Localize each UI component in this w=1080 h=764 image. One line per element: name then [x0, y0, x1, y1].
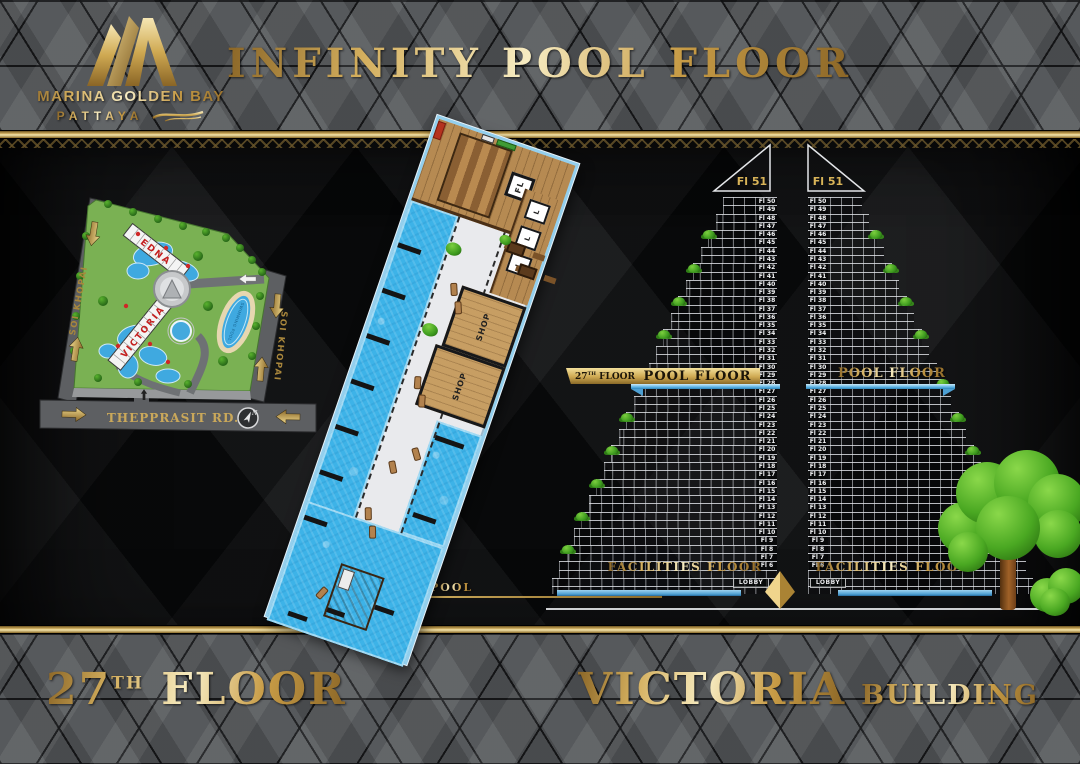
floor-label: Fl 21	[757, 438, 777, 445]
tower-floor-row: Fl 13	[589, 503, 777, 511]
floor-label: Fl 36	[808, 314, 828, 321]
floor-label: Fl 13	[757, 504, 777, 511]
pool-callout-label: POOL	[430, 581, 473, 594]
tree-icon	[673, 297, 685, 306]
floor-label: Fl 11	[757, 521, 777, 528]
tower-floor-row: Fl 11	[581, 520, 777, 528]
floor-label: Fl 39	[757, 289, 777, 296]
floor-label: Fl 50	[808, 198, 828, 205]
tower-floor-row: Fl 34	[808, 329, 922, 337]
tower-floor-row: Fl 22	[808, 429, 966, 437]
tree-icon	[915, 330, 927, 339]
floor-label: Fl 26	[808, 397, 828, 404]
floor-label: Fl 40	[757, 281, 777, 288]
floor-label: Fl 24	[808, 413, 828, 420]
floor-label: Fl 34	[757, 330, 777, 337]
floor-label: Fl 42	[808, 264, 828, 271]
tower-floor-row: Fl 47	[808, 222, 869, 230]
tree-icon	[900, 297, 912, 306]
tower-floor-row: Fl 18	[604, 462, 777, 470]
tower-floor-row: Fl 17	[604, 470, 777, 478]
tower-floor-row: Fl 48	[808, 214, 869, 222]
tower-floor-row: Fl 26	[634, 396, 777, 404]
floor-label: Fl 46	[757, 231, 777, 238]
tower-floor-row: Fl 46	[808, 230, 877, 238]
tree-icon	[658, 330, 670, 339]
floor-label: Fl 14	[808, 496, 828, 503]
floor-label: Fl 14	[757, 496, 777, 503]
tower-floor-row: Fl 21	[619, 437, 777, 445]
floor-label: Fl 40	[808, 281, 828, 288]
sun-lounger	[450, 283, 458, 296]
tower-floor-row: Fl 47	[716, 222, 777, 230]
tower-floor-row: Fl 23	[808, 421, 959, 429]
sun-lounger	[418, 394, 426, 407]
pool-floor-banner-label: POOL FLOOR	[635, 369, 760, 384]
infinity-edge	[943, 389, 955, 396]
floor-label: Fl 25	[757, 405, 777, 412]
floor-label: Fl 43	[808, 256, 828, 263]
tower-floor-row: Fl 41	[693, 272, 777, 280]
floor-label: Fl 19	[808, 455, 828, 462]
floor-label: Fl 37	[757, 306, 777, 313]
floor-label: Fl 39	[808, 289, 828, 296]
tower-floor-row: Fl 26	[808, 396, 951, 404]
base-water-left	[557, 590, 741, 596]
pool-floor-banner: 27TH FLOOR POOL FLOOR	[566, 368, 760, 384]
floor-label: Fl 8	[808, 546, 828, 553]
floor-label: Fl 31	[757, 355, 777, 362]
tower-left-roof: Fl 51	[710, 141, 772, 193]
tree-icon	[952, 413, 964, 422]
tower-floor-row: Fl 24	[626, 412, 777, 420]
tower-floor-row: Fl 42	[808, 263, 892, 271]
tower-floor-row: Fl 45	[808, 238, 877, 246]
floor-label: Fl 10	[808, 529, 828, 536]
footer-floor-label: 27TH FLOOR	[46, 664, 347, 715]
roundabout	[154, 271, 190, 307]
tree-icon	[885, 264, 897, 273]
floor-label: Fl 17	[757, 471, 777, 478]
floor-label: Fl 8	[757, 546, 777, 553]
tree-icon	[562, 545, 574, 554]
pool-water-line-right	[806, 384, 955, 389]
tower-floor-row: Fl 44	[701, 247, 777, 255]
floor-label: Fl 17	[808, 471, 828, 478]
road-bottom-label: THEPPRASIT RD.	[107, 411, 239, 425]
tower-floor-row: Fl 9	[574, 536, 777, 544]
facilities-floor-label-left: FACILITIES FLOOR	[608, 560, 763, 574]
tree-icon	[606, 446, 618, 455]
floor-label: Fl 25	[808, 405, 828, 412]
tower-floor-row: Fl 32	[656, 346, 777, 354]
tree-icon	[1030, 566, 1080, 616]
floor-label: Fl 13	[808, 504, 828, 511]
building-word: BUILDING	[861, 680, 1039, 711]
tower-floor-row: Fl 23	[626, 421, 777, 429]
building-name: VICTORIA	[578, 664, 846, 715]
pool-floor-tag: 27TH FLOOR	[566, 371, 635, 382]
floor-label: Fl 48	[757, 215, 777, 222]
tower-floor-row: Fl 36	[808, 313, 914, 321]
floor-label: Fl 15	[808, 488, 828, 495]
compass-n-label: N	[251, 410, 258, 417]
tower-floor-row: Fl 19	[611, 454, 777, 462]
tower-floor-row: Fl 22	[619, 429, 777, 437]
brand-city: PATTAYA	[57, 109, 144, 123]
tree-icon	[870, 230, 882, 239]
gold-ornament-strip	[0, 139, 1080, 148]
tower-floor-row: Fl 40	[686, 280, 777, 288]
floor-label: Fl 20	[757, 446, 777, 453]
poster: MARINA GOLDEN BAY PATTAYA INFINITY POOL …	[0, 0, 1080, 764]
tower-floor-row: Fl 21	[808, 437, 966, 445]
tower-floor-row: Fl 50	[723, 197, 777, 205]
floor-label: Fl 23	[808, 422, 828, 429]
floor-label: Fl 15	[757, 488, 777, 495]
tree-icon	[621, 413, 633, 422]
floor-label: Fl 43	[757, 256, 777, 263]
floor-label: Fl 22	[757, 430, 777, 437]
floor-label: Fl 50	[757, 198, 777, 205]
floor-label: Fl 26	[757, 397, 777, 404]
floor-label: Fl 9	[808, 537, 828, 544]
floor-label: Fl 29	[808, 372, 828, 379]
floor-label: Fl 33	[808, 339, 828, 346]
tower-floor-row: Fl 37	[808, 305, 907, 313]
floor-label: Fl 27	[808, 388, 828, 395]
tower-floor-row: Fl 31	[808, 354, 929, 362]
floor-label: Fl 41	[808, 273, 828, 280]
page-title: INFINITY POOL FLOOR	[227, 40, 853, 87]
floor-label: Fl 23	[757, 422, 777, 429]
tower-floor-row: Fl 48	[716, 214, 777, 222]
tower-floor-row: Fl 31	[656, 354, 777, 362]
tower-floor-row: Fl 42	[693, 263, 777, 271]
tower-floor-row: Fl 44	[808, 247, 884, 255]
floor-label: Fl 45	[808, 239, 828, 246]
tower-floor-row: Fl 43	[808, 255, 884, 263]
floor-label: Fl 16	[808, 480, 828, 487]
swoosh-icon	[151, 109, 205, 123]
floor-label: Fl 41	[757, 273, 777, 280]
floor-label: Fl 47	[808, 223, 828, 230]
floor-label: Fl 22	[808, 430, 828, 437]
tower-floor-row: Fl 40	[808, 280, 899, 288]
floor-label: Fl 48	[808, 215, 828, 222]
tower-floor-row: Fl 10	[574, 528, 777, 536]
tower-floor-row: Fl 45	[708, 238, 777, 246]
floor-label: Fl 45	[757, 239, 777, 246]
tower-floor-row: Fl 37	[678, 305, 777, 313]
floor-label: Fl 32	[757, 347, 777, 354]
tower-floor-row: Fl 46	[708, 230, 777, 238]
lobby-label-right: LOBBY	[810, 578, 846, 588]
tower-floor-row: Fl 8	[567, 545, 777, 553]
tower-floor-row: Fl 32	[808, 346, 929, 354]
floor-label: Fl 37	[808, 306, 828, 313]
brand-logo: MARINA GOLDEN BAY PATTAYA	[26, 12, 236, 132]
gold-separator-top	[0, 131, 1080, 138]
roof-floor-label: Fl 51	[737, 175, 767, 188]
floor-label: Fl 31	[808, 355, 828, 362]
floor-label: Fl 21	[808, 438, 828, 445]
sun-lounger	[369, 526, 376, 539]
infinity-edge	[631, 389, 643, 396]
floor-label: Fl 16	[757, 480, 777, 487]
tower-floor-row: Fl 25	[808, 404, 951, 412]
floor-label: Fl 49	[808, 206, 828, 213]
floor-label: Fl 9	[757, 537, 777, 544]
lobby-label-left: LOBBY	[733, 578, 769, 588]
tree-icon	[591, 479, 603, 488]
floor-label: Fl 35	[757, 322, 777, 329]
tower-floor-row: Fl 43	[701, 255, 777, 263]
tower-floor-row: Fl 14	[589, 495, 777, 503]
tower-floor-row: Fl 35	[671, 321, 777, 329]
pool-floor-label-right: POOL FLOOR	[836, 366, 948, 381]
tower-floor-row: Fl 35	[808, 321, 914, 329]
footer-building-label: VICTORIA BUILDING	[578, 664, 1039, 715]
mountain-m-logo-icon	[81, 14, 181, 88]
tower-floor-row: Fl 34	[663, 329, 777, 337]
tower-floor-row: Fl 49	[808, 205, 862, 213]
floor-label: Fl 42	[757, 264, 777, 271]
pool-water-line-left	[631, 384, 780, 389]
round-pond	[168, 318, 194, 344]
floor-label: Fl 30	[757, 364, 777, 371]
tower-floor-row: Fl 16	[596, 479, 777, 487]
tower-floor-row: Fl 50	[808, 197, 862, 205]
floor-label: Fl 32	[808, 347, 828, 354]
floor-label: Fl 46	[808, 231, 828, 238]
sun-lounger	[365, 507, 372, 520]
tower-floor-row: Fl 15	[596, 487, 777, 495]
floor-label: Fl 20	[808, 446, 828, 453]
north-compass-icon: N	[238, 408, 258, 428]
brand-name: MARINA GOLDEN BAY	[26, 88, 236, 105]
floor-label: Fl 34	[808, 330, 828, 337]
floor-label: Fl 36	[757, 314, 777, 321]
floor-label: Fl 27	[757, 388, 777, 395]
floor-label: Fl 44	[757, 248, 777, 255]
roof-floor-label: Fl 51	[813, 175, 843, 188]
floor-label: Fl 18	[808, 463, 828, 470]
tree-icon	[703, 230, 715, 239]
tower-floor-row: Fl 36	[671, 313, 777, 321]
site-map: EDNA VICTORIA SWIMMING POOL SO	[38, 186, 338, 451]
tower-floor-row: Fl 49	[723, 205, 777, 213]
tower-floor-row: Fl 39	[686, 288, 777, 296]
floor-label: Fl 38	[757, 297, 777, 304]
floor-label: Fl 44	[808, 248, 828, 255]
floor-label: Fl 35	[808, 322, 828, 329]
floor-label: Fl 30	[808, 364, 828, 371]
floor-label: Fl 49	[757, 206, 777, 213]
floor-label: Fl 38	[808, 297, 828, 304]
floor-label: Fl 29	[757, 372, 777, 379]
floor-label: Fl 18	[757, 463, 777, 470]
tower-floor-row: Fl 20	[611, 445, 777, 453]
pool-callout-line	[430, 596, 662, 598]
tower-floor-row: Fl 39	[808, 288, 899, 296]
floor-label: Fl 47	[757, 223, 777, 230]
tower-floor-row: Fl 41	[808, 272, 892, 280]
tower-floor-row: Fl 12	[581, 512, 777, 520]
floor-label: Fl 12	[757, 513, 777, 520]
floor-label: Fl 19	[757, 455, 777, 462]
floor-label: Fl 24	[757, 413, 777, 420]
tree-icon	[576, 512, 588, 521]
tower-floor-row: Fl 25	[634, 404, 777, 412]
floor-label: Fl 33	[757, 339, 777, 346]
tower-right-roof: Fl 51	[806, 141, 868, 193]
sun-lounger	[414, 376, 422, 389]
gold-separator-bottom	[0, 626, 1080, 633]
tree-icon	[688, 264, 700, 273]
tower-floor-row: Fl 33	[663, 338, 777, 346]
tower-floor-row: Fl 33	[808, 338, 922, 346]
floor-label: Fl 12	[808, 513, 828, 520]
floor-label: Fl 10	[757, 529, 777, 536]
sun-lounger	[454, 301, 462, 314]
tower-floor-row: Fl 24	[808, 412, 959, 420]
floor-label: Fl 11	[808, 521, 828, 528]
tower-floor-row: Fl 38	[678, 296, 777, 304]
tower-floor-row: Fl 38	[808, 296, 907, 304]
